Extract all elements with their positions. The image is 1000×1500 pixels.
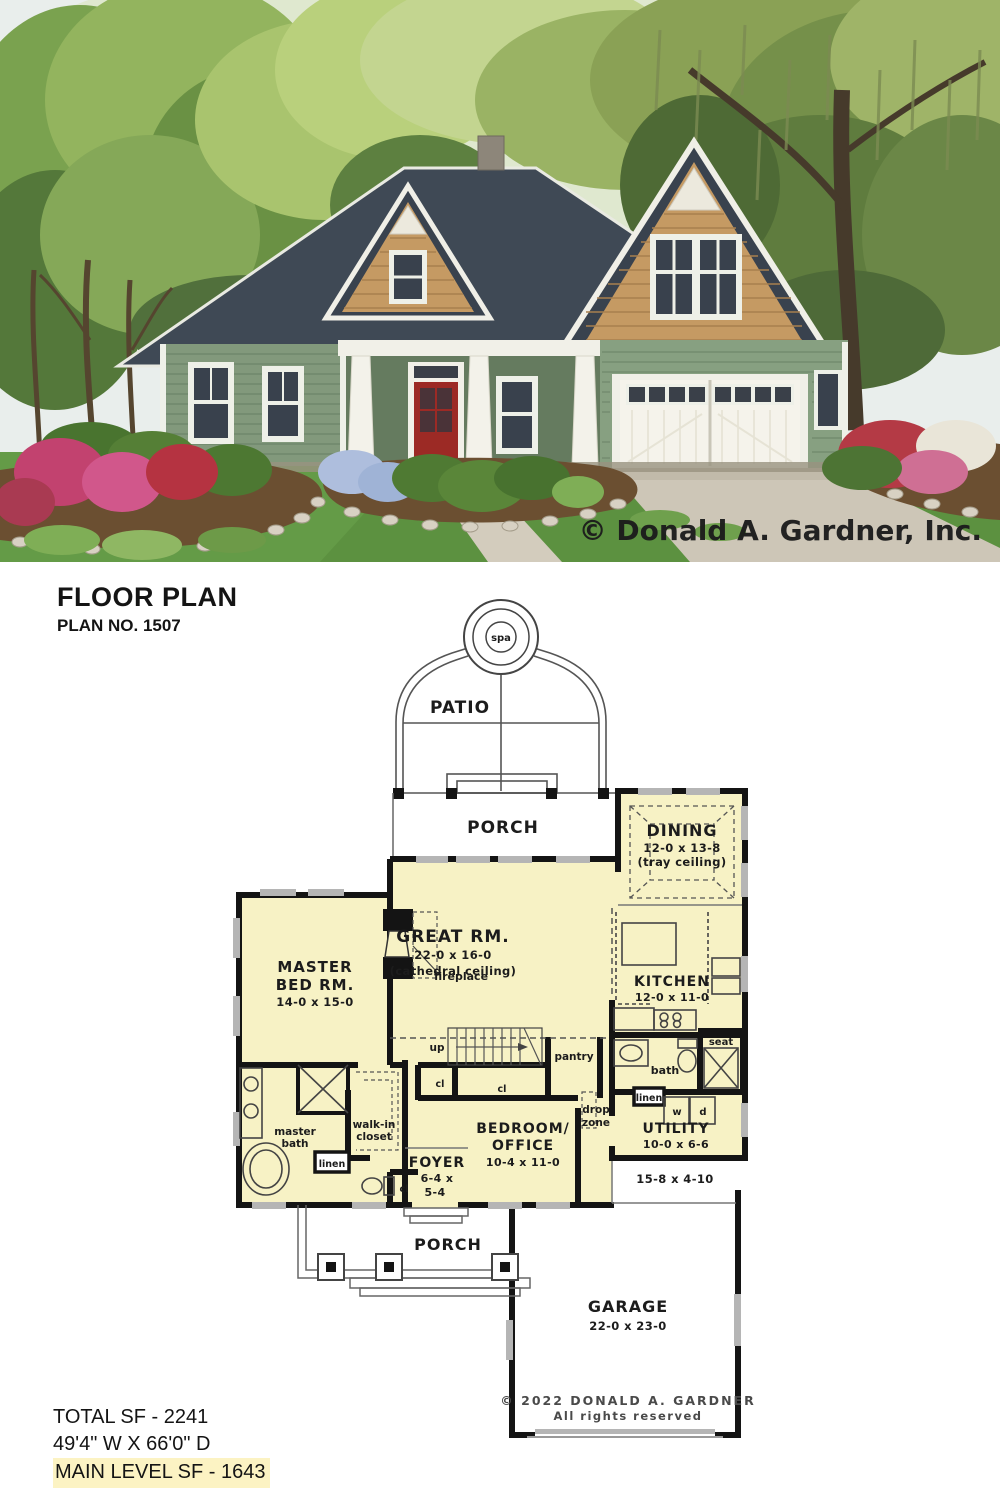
label-patio: PATIO — [430, 698, 490, 718]
label-dryer: d — [699, 1107, 706, 1118]
label-garage: GARAGE — [588, 1297, 668, 1316]
floor-plan: spa PATIO PORCH — [0, 560, 1000, 1500]
label-garage-dims: 22-0 x 23-0 — [589, 1319, 666, 1333]
label-cl-1: cl — [436, 1079, 445, 1090]
label-foyer-dims-1: 6-4 x — [421, 1172, 454, 1185]
label-dining-note: (tray ceiling) — [637, 855, 726, 869]
label-linen-2: linen — [319, 1159, 346, 1170]
label-rear-porch: PORCH — [467, 818, 539, 838]
exterior-photo: © Donald A. Gardner, Inc. — [0, 0, 1000, 562]
label-spa: spa — [491, 633, 511, 644]
floor-plan-svg: spa PATIO PORCH — [0, 560, 1000, 1500]
plan-copyright-2: All rights reserved — [554, 1409, 703, 1423]
label-bedroom-dims: 10-4 x 11-0 — [486, 1156, 560, 1169]
label-stoop-dims: 15-8 x 4-10 — [636, 1172, 713, 1186]
label-kitchen-dims: 12-0 x 11-0 — [635, 991, 709, 1004]
left-window-2 — [262, 366, 304, 442]
right-side-window — [814, 370, 842, 430]
label-master-dims: 14-0 x 15-0 — [276, 995, 353, 1009]
label-great-room-dims: 22-0 x 16-0 — [414, 948, 491, 962]
label-linen-1: linen — [636, 1093, 663, 1104]
garage-wing — [600, 340, 848, 468]
label-master-bath-2: bath — [281, 1138, 308, 1150]
label-great-room: GREAT RM. — [396, 927, 509, 947]
label-utility-dims: 10-0 x 6-6 — [643, 1138, 709, 1151]
exterior-photo-svg: © Donald A. Gardner, Inc. — [0, 0, 1000, 562]
label-wic-2: closet — [356, 1131, 391, 1143]
label-seat: seat — [709, 1037, 733, 1048]
label-cl-2: cl — [498, 1084, 507, 1095]
main-level-sf: MAIN LEVEL SF - 1643 — [53, 1458, 270, 1488]
label-pantry: pantry — [554, 1051, 593, 1063]
total-sf: TOTAL SF - 2241 — [53, 1404, 270, 1431]
label-foyer: FOYER — [409, 1155, 465, 1171]
label-cl-3: cl — [400, 1184, 409, 1195]
front-door — [408, 362, 464, 466]
label-kitchen: KITCHEN — [634, 974, 710, 990]
label-front-porch: PORCH — [414, 1235, 482, 1254]
plan-copyright-1: © 2022 DONALD A. GARDNER — [500, 1393, 755, 1408]
center-gable-window — [389, 250, 427, 304]
label-drop-2: zone — [582, 1117, 610, 1129]
porch-beam — [338, 340, 604, 356]
label-foyer-dims-2: 5-4 — [424, 1186, 445, 1199]
label-master-1: MASTER — [277, 958, 352, 976]
label-fireplace: fireplace — [434, 970, 488, 983]
chimney — [478, 136, 504, 170]
gable-double-window — [650, 234, 742, 320]
label-bedroom-2: OFFICE — [492, 1138, 554, 1154]
label-master-bath-1: master — [274, 1126, 316, 1138]
label-dining: DINING — [646, 821, 717, 840]
label-dining-dims: 12-0 x 13-8 — [643, 841, 720, 855]
left-window-1 — [188, 362, 234, 444]
label-wic-1: walk-in — [353, 1119, 396, 1131]
label-bedroom-1: BEDROOM/ — [476, 1121, 569, 1137]
label-utility: UTILITY — [643, 1121, 710, 1137]
porch-window — [496, 376, 538, 454]
garage-door — [612, 374, 808, 468]
footprint-dimensions: 49'4" W X 66'0" D — [53, 1431, 270, 1458]
page: © Donald A. Gardner, Inc. FLOOR PLAN PLA… — [0, 0, 1000, 1500]
label-up: up — [430, 1042, 445, 1054]
plan-summary: TOTAL SF - 2241 49'4" W X 66'0" D MAIN L… — [53, 1404, 270, 1488]
label-drop-1: drop — [582, 1104, 610, 1116]
front-porch-photo — [338, 340, 604, 472]
photo-watermark: © Donald A. Gardner, Inc. — [579, 514, 982, 547]
label-washer: w — [672, 1107, 681, 1118]
label-master-2: BED RM. — [276, 976, 355, 994]
front-porch-columns — [318, 1254, 518, 1280]
label-bath: bath — [651, 1064, 679, 1077]
